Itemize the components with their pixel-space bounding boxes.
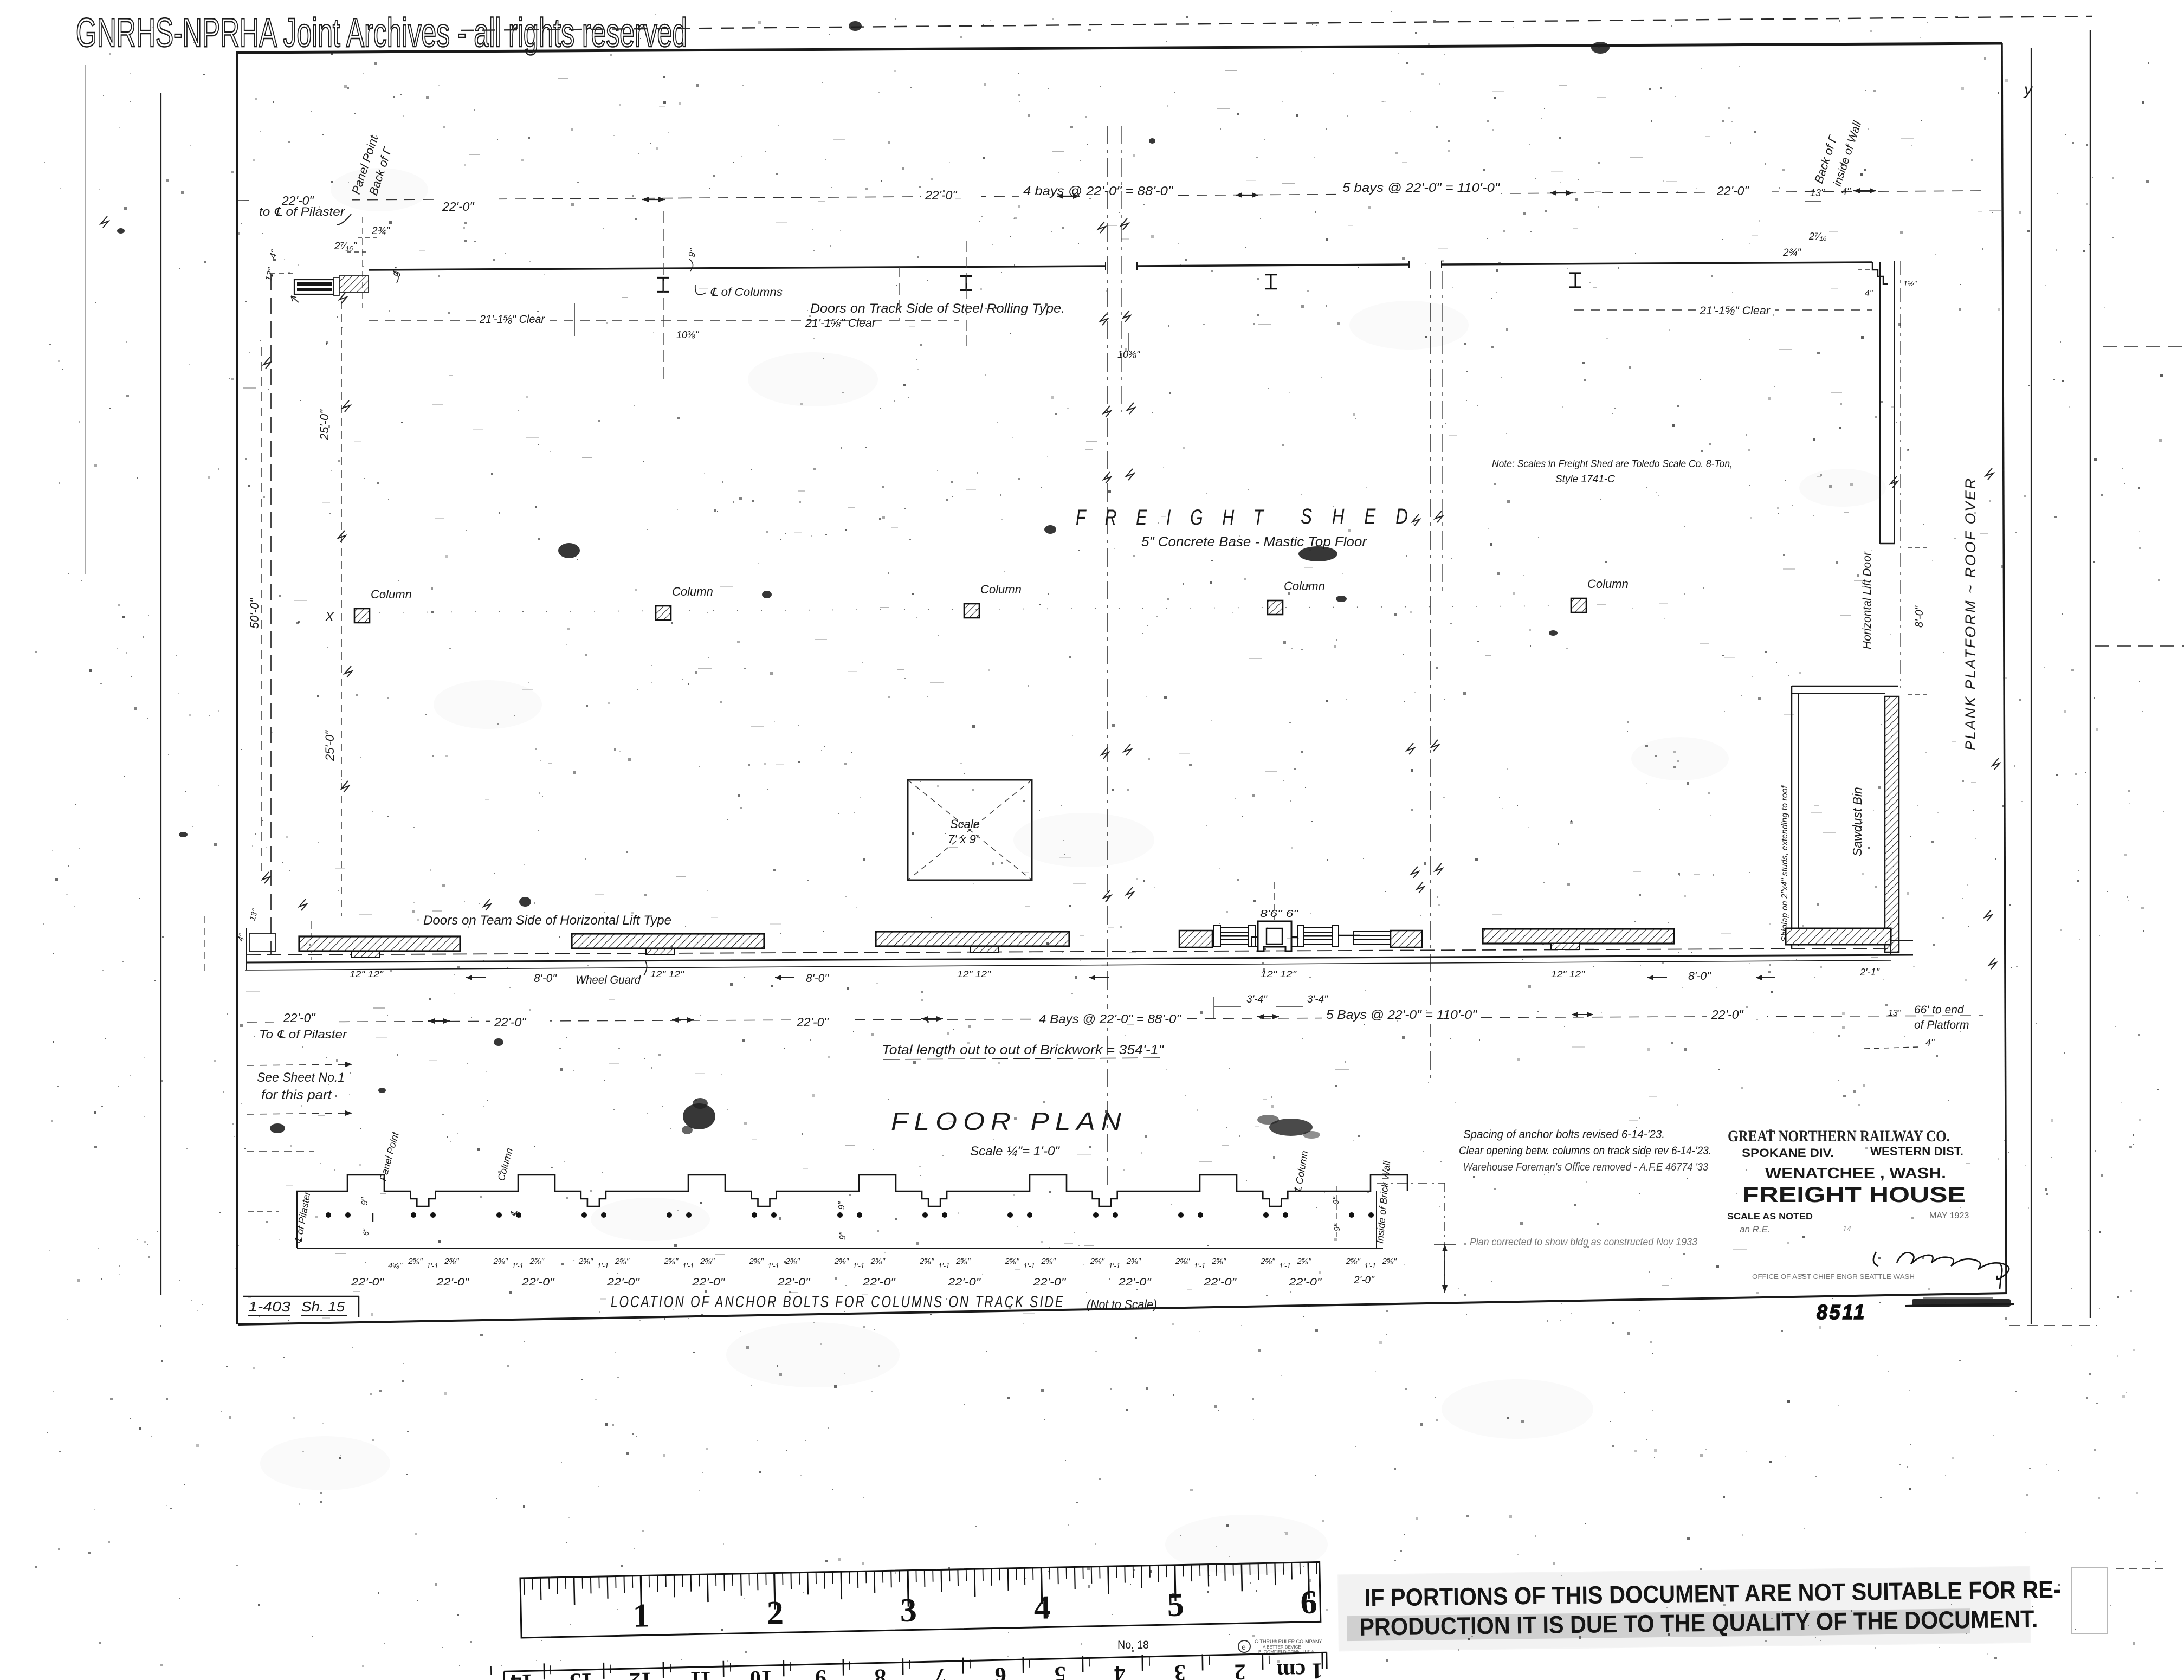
svg-text:5" Concrete Base - Mastic Top: 5" Concrete Base - Mastic Top Floor <box>1141 534 1368 550</box>
svg-text:(Not to Scale): (Not to Scale) <box>1087 1297 1157 1312</box>
svg-text:2: 2 <box>1234 1659 1246 1680</box>
svg-text:4 bays @ 22'-0" = 88'-0": 4 bays @ 22'-0" = 88'-0" <box>1023 184 1174 198</box>
svg-text:22'-0": 22'-0" <box>1711 1007 1744 1022</box>
svg-text:Spacing of anchor bolts revise: Spacing of anchor bolts revised 6-14-'23… <box>1463 1128 1665 1141</box>
svg-text:Horizontal Lift Door: Horizontal Lift Door <box>1861 551 1873 649</box>
svg-text:2⅝": 2⅝" <box>1004 1257 1019 1266</box>
svg-text:22'-0": 22'-0" <box>1288 1277 1322 1288</box>
svg-text:Scale ¼"= 1'-0": Scale ¼"= 1'-0" <box>970 1144 1060 1159</box>
svg-text:X: X <box>325 610 334 624</box>
svg-text:13": 13" <box>1810 188 1825 198</box>
svg-text:2⅝": 2⅝" <box>408 1257 423 1266</box>
svg-text:8'-0": 8'-0" <box>806 972 829 985</box>
svg-text:4": 4" <box>1841 186 1851 197</box>
svg-text:2⅝": 2⅝" <box>1346 1257 1361 1266</box>
svg-text:1 cm: 1 cm <box>1276 1658 1323 1680</box>
svg-text:Doors on Team Side of Horizont: Doors on Team Side of Horizontal Lift Ty… <box>423 913 671 928</box>
svg-text:4 Bays @ 22'-0" = 88'-0": 4 Bays @ 22'-0" = 88'-0" <box>1039 1012 1182 1026</box>
svg-text:y: y <box>2023 81 2033 99</box>
svg-text:4⅝": 4⅝" <box>388 1261 403 1270</box>
svg-text:5: 5 <box>1167 1586 1184 1624</box>
svg-text:2⅝": 2⅝" <box>529 1257 545 1266</box>
svg-text:22'-0": 22'-0" <box>777 1277 811 1288</box>
svg-text:2⅝": 2⅝" <box>919 1257 934 1266</box>
svg-text:Wheel Guard: Wheel Guard <box>576 974 641 986</box>
svg-text:3'-4": 3'-4" <box>1307 994 1328 1005</box>
svg-text:Column: Column <box>1587 577 1629 591</box>
svg-text:12" 12": 12" 12" <box>1261 969 1297 979</box>
svg-text:22'-0": 22'-0" <box>1716 184 1749 198</box>
svg-text:WENATCHEE , WASH.: WENATCHEE , WASH. <box>1765 1165 1946 1181</box>
svg-text:To ℄ of Pilaster: To ℄ of Pilaster <box>259 1028 348 1041</box>
svg-text:S H E D: S H E D <box>1301 505 1416 528</box>
svg-text:Column: Column <box>672 585 713 598</box>
svg-text:50'-0": 50'-0" <box>248 598 261 629</box>
svg-text:9": 9" <box>837 1201 847 1210</box>
svg-text:GNRHS-NPRHA Joint Archives - a: GNRHS-NPRHA Joint Archives - all rights … <box>76 10 687 55</box>
svg-text:5 bays @ 22'-0" = 110'-0": 5 bays @ 22'-0" = 110'-0" <box>1342 180 1501 195</box>
svg-text:2⅝": 2⅝" <box>1175 1257 1190 1266</box>
svg-text:22'-0": 22'-0" <box>1203 1277 1237 1288</box>
svg-text:1'-1: 1'-1 <box>768 1262 779 1270</box>
svg-text:12" 12": 12" 12" <box>650 969 684 979</box>
svg-text:Plan corrected to show bldg as: Plan corrected to show bldg as construct… <box>1470 1237 1697 1248</box>
svg-text:9: 9 <box>815 1665 826 1680</box>
svg-text:22'-0": 22'-0" <box>283 1011 316 1025</box>
svg-text:2⁷⁄₁₆: 2⁷⁄₁₆ <box>1808 231 1827 242</box>
svg-text:22'-0": 22'-0" <box>494 1015 527 1029</box>
svg-text:4: 4 <box>1033 1589 1051 1626</box>
svg-text:3: 3 <box>900 1592 917 1629</box>
svg-text:1'-1: 1'-1 <box>853 1262 864 1270</box>
svg-text:C-THRU® RULER CO-MPANY: C-THRU® RULER CO-MPANY <box>1255 1639 1322 1644</box>
svg-text:2⅝": 2⅝" <box>663 1257 679 1266</box>
svg-text:13": 13" <box>1888 1009 1902 1018</box>
svg-text:13: 13 <box>570 1668 593 1680</box>
svg-text:1'-1: 1'-1 <box>682 1262 694 1270</box>
svg-text:2: 2 <box>766 1594 784 1632</box>
svg-text:8'-0": 8'-0" <box>534 972 557 985</box>
svg-text:1'-1: 1'-1 <box>427 1262 438 1270</box>
svg-text:11: 11 <box>690 1666 712 1680</box>
svg-text:FREIGHT HOUSE: FREIGHT HOUSE <box>1742 1183 1966 1207</box>
svg-text:4: 4 <box>1114 1660 1126 1680</box>
svg-text:2⅝": 2⅝" <box>700 1257 715 1266</box>
svg-text:5 Bays @ 22'-0" = 110'-0": 5 Bays @ 22'-0" = 110'-0" <box>1326 1007 1478 1022</box>
svg-text:SPOKANE DIV.: SPOKANE DIV. <box>1742 1146 1834 1160</box>
svg-text:WESTERN DIST.: WESTERN DIST. <box>1870 1145 1963 1158</box>
svg-text:14: 14 <box>510 1669 533 1680</box>
svg-text:21'-1⅝" Clear: 21'-1⅝" Clear <box>479 313 545 326</box>
svg-text:2'-1": 2'-1" <box>1859 967 1880 978</box>
svg-text:2'-0": 2'-0" <box>1353 1275 1375 1286</box>
svg-text:14: 14 <box>1843 1224 1851 1233</box>
svg-text:22'-0": 22'-0" <box>925 188 958 202</box>
svg-text:1'-1: 1'-1 <box>1194 1262 1205 1270</box>
svg-text:12" 12": 12" 12" <box>957 969 991 979</box>
svg-text:2⅝": 2⅝" <box>870 1257 886 1266</box>
svg-text:Column: Column <box>371 587 412 601</box>
svg-text:25'-0": 25'-0" <box>323 730 337 761</box>
svg-text:7: 7 <box>934 1663 946 1680</box>
svg-text:8511: 8511 <box>1817 1301 1866 1324</box>
svg-text:2⅝": 2⅝" <box>578 1257 593 1266</box>
svg-text:Shiplap on 2"x4" studs, extend: Shiplap on 2"x4" studs, extending to roo… <box>1780 785 1789 942</box>
svg-text:1'-1: 1'-1 <box>512 1262 524 1270</box>
svg-text:8'6" 6": 8'6" 6" <box>1260 908 1299 919</box>
svg-text:1½": 1½" <box>1903 279 1917 288</box>
svg-text:PLANK PLATFORM ~ ROOF OVER: PLANK PLATFORM ~ ROOF OVER <box>1962 477 1979 751</box>
svg-text:1'-1: 1'-1 <box>1279 1262 1290 1270</box>
svg-text:22'-0": 22'-0" <box>442 199 475 214</box>
svg-text:2¾": 2¾" <box>1782 247 1801 259</box>
svg-text:Doors on Track Side of Steel R: Doors on Track Side of Steel Rolling Typ… <box>810 301 1065 316</box>
svg-text:FLOOR PLAN: FLOOR PLAN <box>891 1107 1127 1135</box>
svg-text:22'-0": 22'-0" <box>1117 1277 1152 1288</box>
svg-text:2⅝": 2⅝" <box>1041 1257 1056 1266</box>
svg-text:2⅝": 2⅝" <box>1296 1257 1311 1266</box>
svg-text:1'-1: 1'-1 <box>1023 1262 1035 1270</box>
svg-text:2¾": 2¾" <box>371 225 390 237</box>
svg-text:F R E I G H T: F R E I G H T <box>1076 506 1271 529</box>
svg-text:2⅝": 2⅝" <box>834 1257 849 1266</box>
svg-text:22'-0": 22'-0" <box>796 1015 829 1029</box>
svg-text:MAY 1923: MAY 1923 <box>1929 1211 1969 1220</box>
svg-text:8: 8 <box>874 1664 886 1680</box>
svg-text:7' x 9': 7' x 9' <box>948 832 979 846</box>
svg-text:22'-0": 22'-0" <box>862 1277 896 1288</box>
svg-text:22'-0": 22'-0" <box>436 1277 470 1288</box>
svg-text:for this part: for this part <box>261 1088 332 1102</box>
svg-text:9": 9" <box>1333 1224 1342 1231</box>
svg-text:5: 5 <box>1054 1662 1066 1680</box>
svg-text:3: 3 <box>1174 1660 1186 1680</box>
svg-text:to ℄ of Pilaster: to ℄ of Pilaster <box>259 205 346 218</box>
svg-text:4": 4" <box>1865 289 1873 298</box>
svg-text:1'-1: 1'-1 <box>1365 1262 1376 1270</box>
svg-text:No. 18: No. 18 <box>1117 1639 1149 1651</box>
svg-text:Total length out to out of Br: Total length out to out of Brickwork = 3… <box>882 1043 1165 1057</box>
svg-text:22'-0": 22'-0" <box>351 1277 385 1288</box>
svg-text:22'-0": 22'-0" <box>692 1277 726 1288</box>
svg-text:1: 1 <box>632 1597 650 1634</box>
svg-text:Column: Column <box>1284 579 1325 593</box>
svg-text:22'-0": 22'-0" <box>1032 1277 1067 1288</box>
svg-text:of Platform: of Platform <box>1914 1019 1969 1031</box>
svg-text:22'-0": 22'-0" <box>521 1277 555 1288</box>
svg-text:SCALE AS NOTED: SCALE AS NOTED <box>1727 1211 1813 1222</box>
svg-text:Style 1741-C: Style 1741-C <box>1555 474 1615 485</box>
svg-text:Clear opening betw. columns on: Clear opening betw. columns on track sid… <box>1459 1145 1711 1157</box>
svg-text:2⅝": 2⅝" <box>1211 1257 1226 1266</box>
svg-text:A BETTER DEVICE: A BETTER DEVICE <box>1263 1645 1301 1650</box>
svg-text:Scale: Scale <box>950 817 980 831</box>
svg-text:e: e <box>1242 1643 1246 1651</box>
svg-text:8'-0": 8'-0" <box>1914 605 1925 628</box>
svg-text:OFFICE OF ASST CHIEF ENGR: OFFICE OF ASST CHIEF ENGR SEATTLE WASH <box>1752 1272 1915 1281</box>
svg-text:an R.E.: an R.E. <box>1740 1224 1771 1235</box>
svg-text:2⅝": 2⅝" <box>955 1257 971 1266</box>
svg-text:8'-0": 8'-0" <box>1688 970 1711 983</box>
svg-text:GREAT NORTHERN RAILWAY CO.: GREAT NORTHERN RAILWAY CO. <box>1728 1127 1950 1145</box>
svg-text:6: 6 <box>994 1662 1006 1680</box>
svg-text:25'-0": 25'-0" <box>318 409 331 441</box>
svg-text:21'-1⅝" Clear: 21'-1⅝" Clear <box>805 317 876 329</box>
svg-text:10⅜": 10⅜" <box>1117 349 1141 360</box>
svg-text:9": 9" <box>838 1231 848 1240</box>
svg-text:12" 12": 12" 12" <box>350 969 384 979</box>
svg-text:22'-0": 22'-0" <box>606 1277 641 1288</box>
svg-text:See Sheet No.1: See Sheet No.1 <box>257 1070 345 1085</box>
svg-text:2⅝": 2⅝" <box>749 1257 764 1266</box>
svg-text:6: 6 <box>1300 1584 1317 1621</box>
svg-text:Note: Scales in Freight Shed a: Note: Scales in Freight Shed are Toledo … <box>1492 458 1733 470</box>
svg-text:Sawdust Bin: Sawdust Bin <box>1850 787 1864 856</box>
svg-text:Warehouse Foreman's Office rem: Warehouse Foreman's Office removed - A.F… <box>1463 1161 1708 1173</box>
svg-text:2⅝": 2⅝" <box>1090 1257 1105 1266</box>
svg-text:LOCATION OF ANCHOR BOLTS F: LOCATION OF ANCHOR BOLTS FOR COLUMNS ON … <box>611 1293 1065 1311</box>
svg-text:Sh. 15: Sh. 15 <box>301 1298 345 1315</box>
svg-text:12" 12": 12" 12" <box>1551 969 1585 979</box>
svg-text:2⅝": 2⅝" <box>493 1257 508 1266</box>
svg-text:2⅝": 2⅝" <box>1126 1257 1141 1266</box>
svg-text:21'-1⅝" Clear: 21'-1⅝" Clear <box>1699 305 1771 317</box>
svg-text:1'-1: 1'-1 <box>1109 1262 1120 1270</box>
svg-text:2⁷⁄₁₆": 2⁷⁄₁₆" <box>334 241 358 252</box>
svg-text:2⅝": 2⅝" <box>444 1257 459 1266</box>
svg-text:℄ of Columns: ℄ of Columns <box>710 286 783 299</box>
svg-text:10: 10 <box>749 1666 773 1680</box>
svg-text:9": 9" <box>360 1197 370 1205</box>
svg-text:12: 12 <box>629 1668 652 1680</box>
svg-text:66' to end: 66' to end <box>1914 1004 1965 1016</box>
svg-text:22'-0": 22'-0" <box>947 1277 981 1288</box>
svg-text:3'-4": 3'-4" <box>1246 994 1268 1005</box>
svg-text:Column: Column <box>980 583 1022 596</box>
svg-text:2⅝": 2⅝" <box>1382 1257 1397 1266</box>
svg-text:1'-1: 1'-1 <box>938 1262 949 1270</box>
svg-text:2⅝": 2⅝" <box>785 1257 800 1266</box>
svg-text:2⅝": 2⅝" <box>1260 1257 1275 1266</box>
svg-text:2⅝": 2⅝" <box>615 1257 630 1266</box>
svg-text:10⅜": 10⅜" <box>676 329 700 340</box>
svg-text:4": 4" <box>1925 1037 1935 1048</box>
svg-text:1'-1: 1'-1 <box>597 1262 609 1270</box>
svg-text:6": 6" <box>361 1228 370 1236</box>
